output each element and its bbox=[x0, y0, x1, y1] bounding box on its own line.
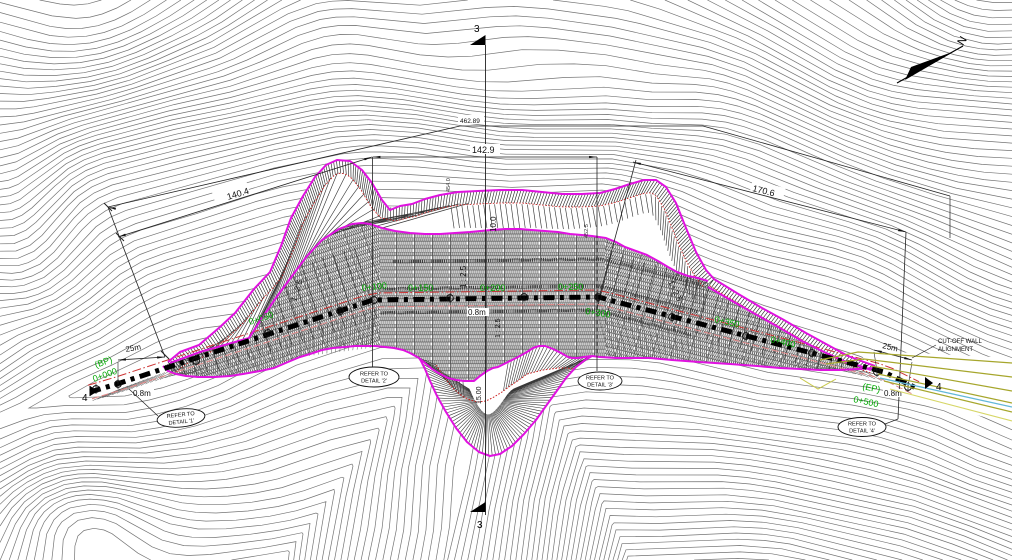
svg-text:15.00: 15.00 bbox=[476, 386, 483, 404]
svg-text:REFER TO: REFER TO bbox=[586, 376, 615, 382]
svg-text:REFER TO: REFER TO bbox=[360, 372, 389, 378]
svg-text:0.8m: 0.8m bbox=[468, 308, 486, 317]
svg-text:0.8m: 0.8m bbox=[133, 389, 151, 398]
svg-text:0+150: 0+150 bbox=[408, 283, 433, 293]
svg-text:3: 3 bbox=[474, 24, 480, 35]
svg-text:454.0: 454.0 bbox=[446, 178, 452, 192]
svg-text:4: 4 bbox=[936, 382, 942, 393]
svg-text:452.5: 452.5 bbox=[584, 224, 590, 238]
svg-text:142.9: 142.9 bbox=[472, 145, 495, 155]
svg-text:0+250: 0+250 bbox=[558, 282, 583, 292]
svg-text:DETAIL '2': DETAIL '2' bbox=[361, 379, 387, 385]
svg-text:CUT-OFF WALL: CUT-OFF WALL bbox=[938, 339, 982, 345]
svg-text:3: 3 bbox=[477, 520, 483, 531]
svg-text:4: 4 bbox=[82, 393, 88, 404]
svg-text:ALIGNMENT: ALIGNMENT bbox=[938, 347, 973, 353]
svg-text:462.89: 462.89 bbox=[460, 118, 480, 125]
svg-text:DETAIL '3': DETAIL '3' bbox=[587, 383, 613, 389]
svg-text:1 : 2.5: 1 : 2.5 bbox=[495, 318, 502, 338]
svg-text:1 : 2.5: 1 : 2.5 bbox=[459, 265, 468, 288]
svg-text:DETAIL '4': DETAIL '4' bbox=[849, 429, 875, 435]
svg-text:10.0: 10.0 bbox=[489, 216, 498, 232]
svg-text:0+200: 0+200 bbox=[480, 283, 505, 293]
svg-text:REFER TO: REFER TO bbox=[848, 422, 877, 428]
